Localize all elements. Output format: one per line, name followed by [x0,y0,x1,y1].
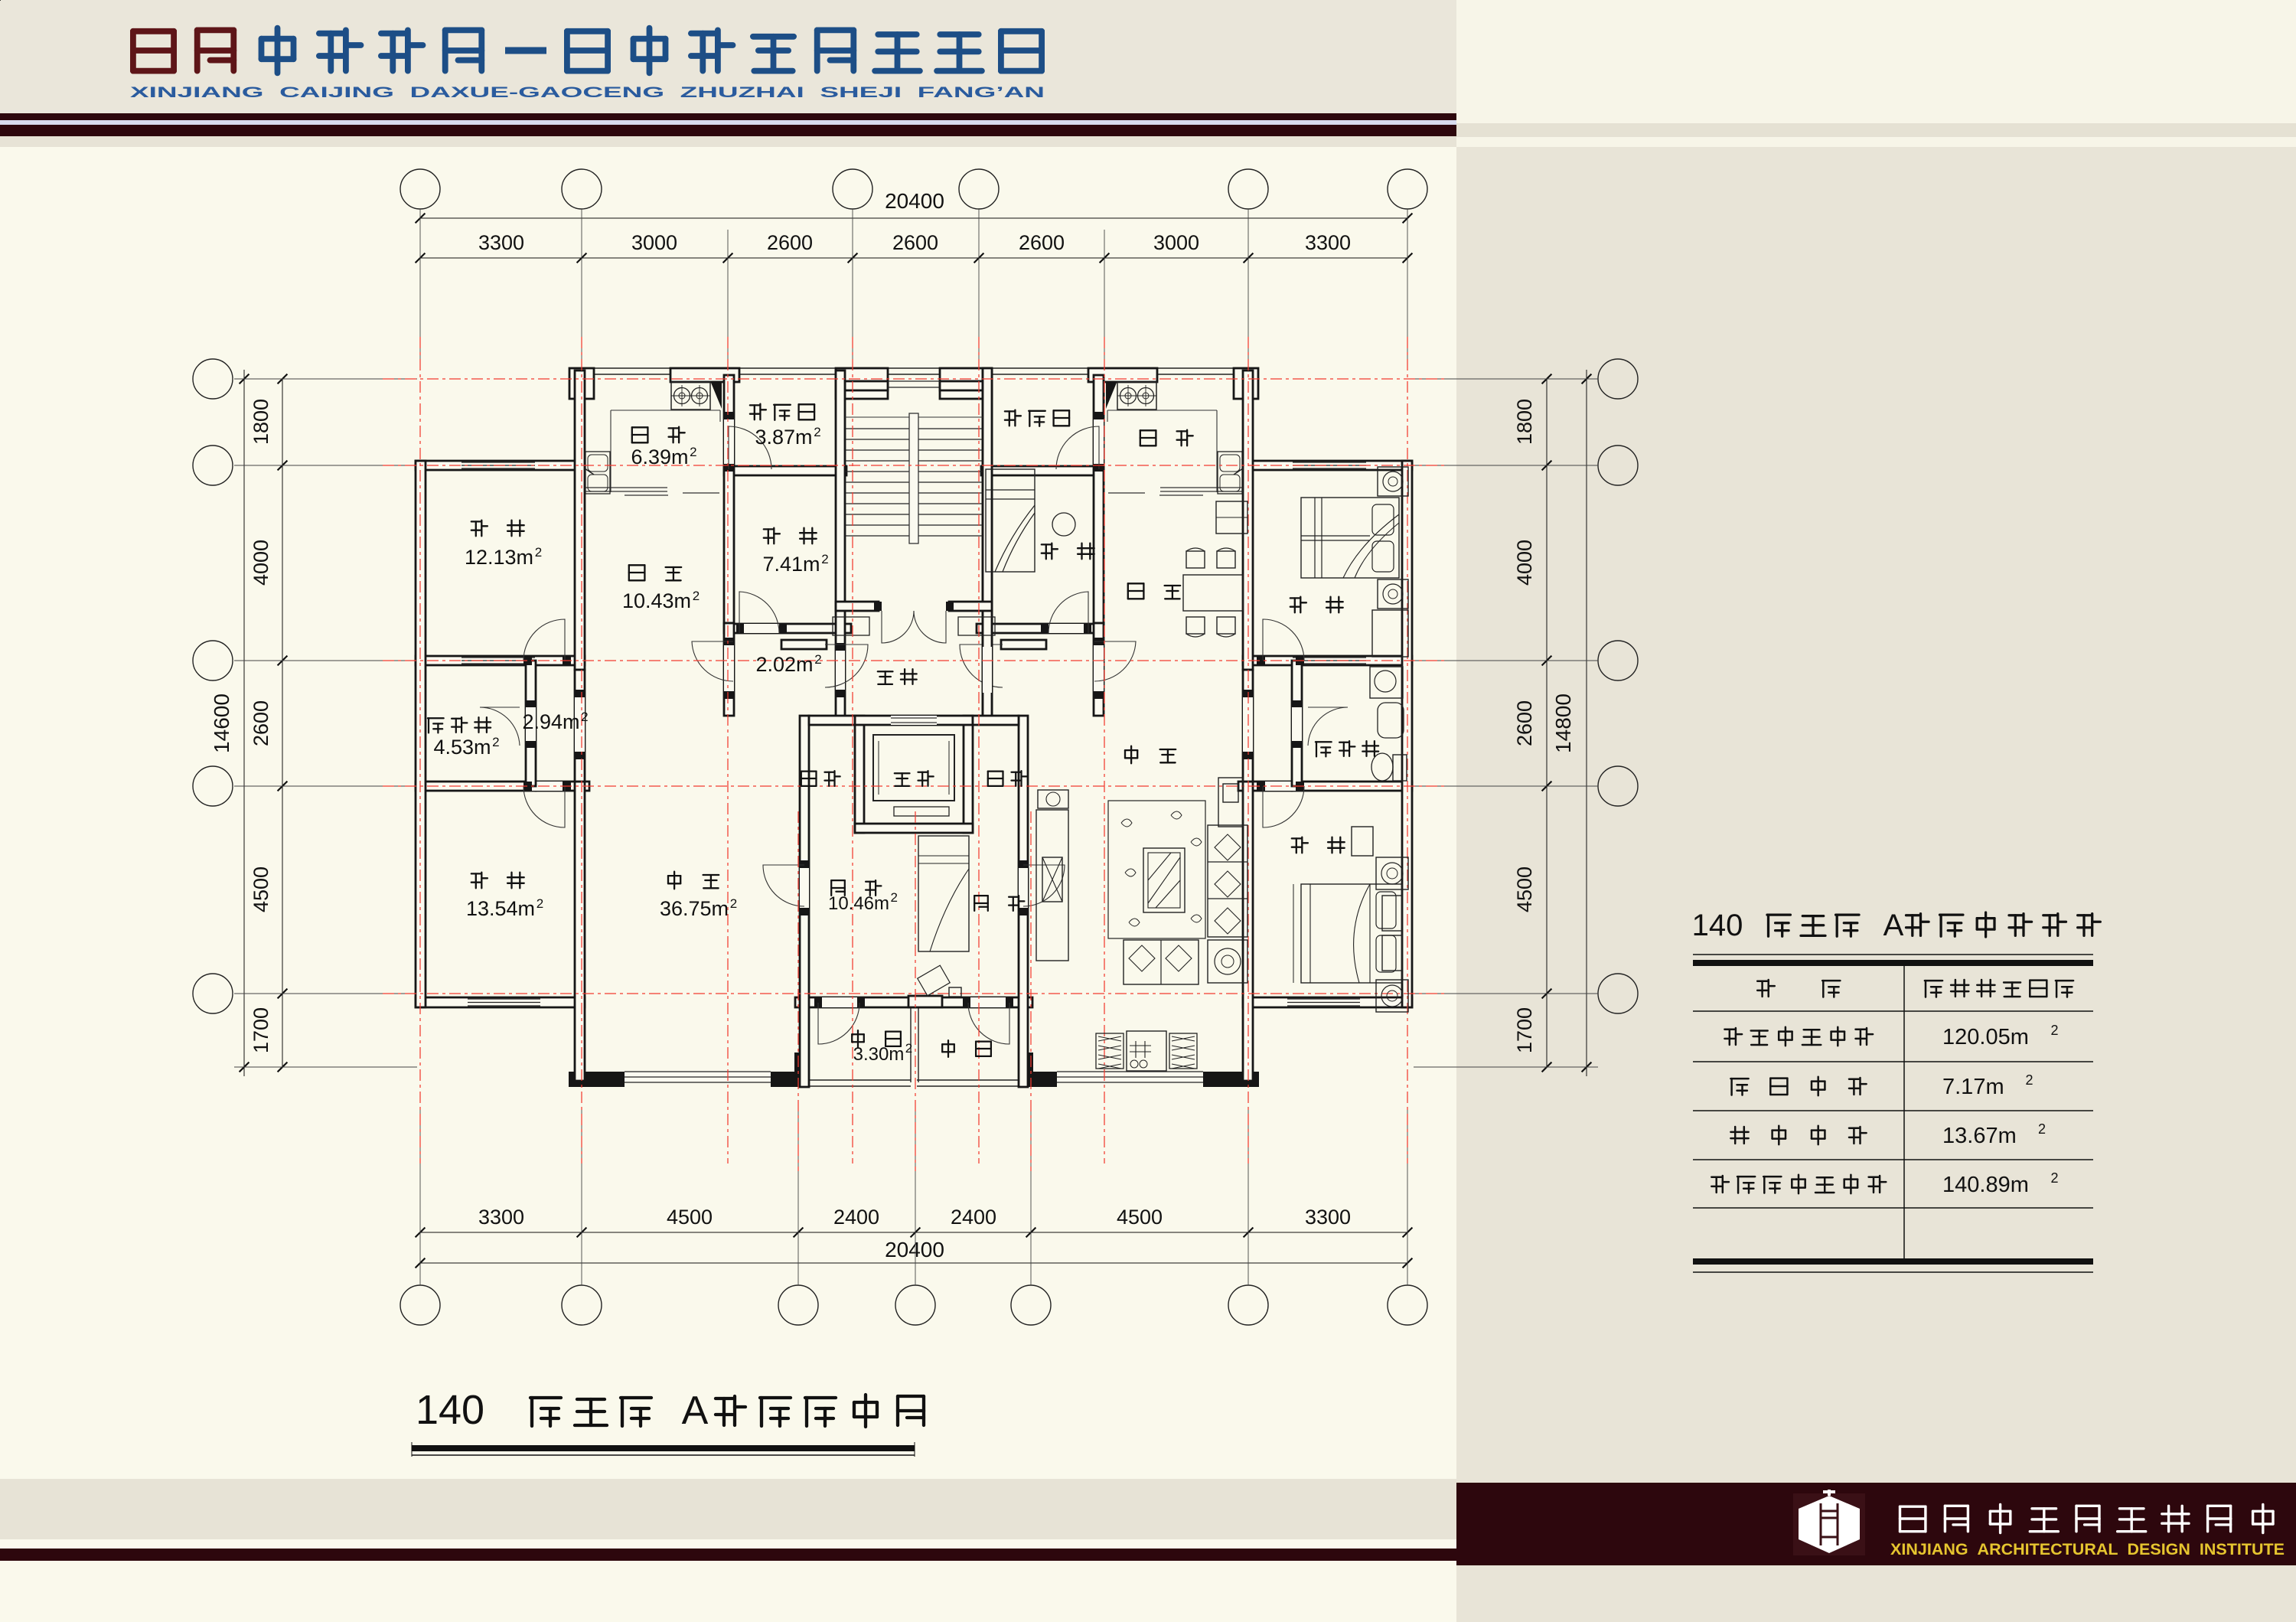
svg-text:4500: 4500 [249,866,272,912]
svg-text:120.05m: 120.05m [1942,1025,2029,1049]
svg-text:3300: 3300 [1305,231,1351,254]
svg-text:2600: 2600 [767,231,813,254]
svg-text:4500: 4500 [1117,1206,1163,1229]
svg-text:140: 140 [416,1387,484,1433]
svg-text:2.02m: 2.02m [755,653,813,676]
svg-text:1700: 1700 [1513,1007,1536,1053]
svg-text:7.41m: 7.41m [762,553,820,576]
svg-text:14600: 14600 [210,694,233,753]
svg-text:2: 2 [891,890,898,905]
svg-text:10.46m: 10.46m [828,893,889,914]
svg-text:3300: 3300 [478,231,524,254]
svg-text:2.94m: 2.94m [522,710,579,733]
svg-text:2600: 2600 [1019,231,1065,254]
svg-text:2: 2 [2051,1170,2059,1186]
svg-text:2400: 2400 [833,1206,879,1229]
svg-text:2600: 2600 [892,231,938,254]
svg-text:3.30m: 3.30m [853,1044,905,1065]
svg-text:2: 2 [693,589,700,603]
svg-text:2: 2 [730,896,737,911]
svg-text:2: 2 [581,710,588,724]
svg-text:13.67m: 13.67m [1942,1124,2017,1148]
svg-text:36.75m: 36.75m [660,897,729,920]
svg-text:2: 2 [536,896,543,911]
svg-text:2: 2 [492,735,499,749]
svg-text:20400: 20400 [885,1238,944,1261]
svg-text:7.17m: 7.17m [1942,1075,2004,1099]
svg-text:1800: 1800 [1513,399,1536,445]
svg-text:2: 2 [2038,1121,2046,1137]
svg-text:140.89m: 140.89m [1942,1173,2029,1197]
svg-text:2600: 2600 [1513,700,1536,746]
svg-text:2600: 2600 [249,700,272,746]
svg-text:XINJIANG CAIJING DAXUE-GAOCE: XINJIANG CAIJING DAXUE-GAOCENG ZHUZHAI S… [130,85,1045,101]
svg-text:3000: 3000 [1153,231,1199,254]
svg-text:20400: 20400 [885,189,944,213]
svg-text:1700: 1700 [249,1007,272,1053]
svg-text:2: 2 [814,652,821,667]
svg-text:3000: 3000 [631,231,677,254]
svg-text:3300: 3300 [478,1206,524,1229]
svg-text:2: 2 [2026,1072,2033,1088]
svg-text:4500: 4500 [1513,866,1536,912]
svg-text:4.53m: 4.53m [433,736,491,759]
svg-text:3.87m: 3.87m [755,426,812,449]
svg-text:2: 2 [905,1041,912,1056]
svg-text:A: A [682,1389,709,1433]
svg-text:10.43m: 10.43m [622,589,691,612]
svg-text:4500: 4500 [667,1206,713,1229]
svg-text:2400: 2400 [951,1206,996,1229]
svg-text:4000: 4000 [249,540,272,586]
svg-text:3300: 3300 [1305,1206,1351,1229]
svg-text:1800: 1800 [249,399,272,445]
svg-text:2: 2 [2051,1023,2059,1038]
svg-text:12.13m: 12.13m [465,546,533,569]
svg-text:2: 2 [821,552,828,566]
svg-text:XINJIANG ARCHITECTURAL DESIG: XINJIANG ARCHITECTURAL DESIGN INSTITUTE [1890,1541,2285,1558]
svg-text:A: A [1883,909,1904,942]
svg-text:4000: 4000 [1513,540,1536,586]
svg-text:14800: 14800 [1551,694,1575,753]
svg-text:13.54m: 13.54m [466,897,535,920]
svg-text:140: 140 [1692,909,1743,942]
svg-text:2: 2 [690,445,696,459]
svg-text:6.39m: 6.39m [631,445,688,468]
svg-text:2: 2 [535,545,542,560]
svg-text:2: 2 [814,425,820,439]
